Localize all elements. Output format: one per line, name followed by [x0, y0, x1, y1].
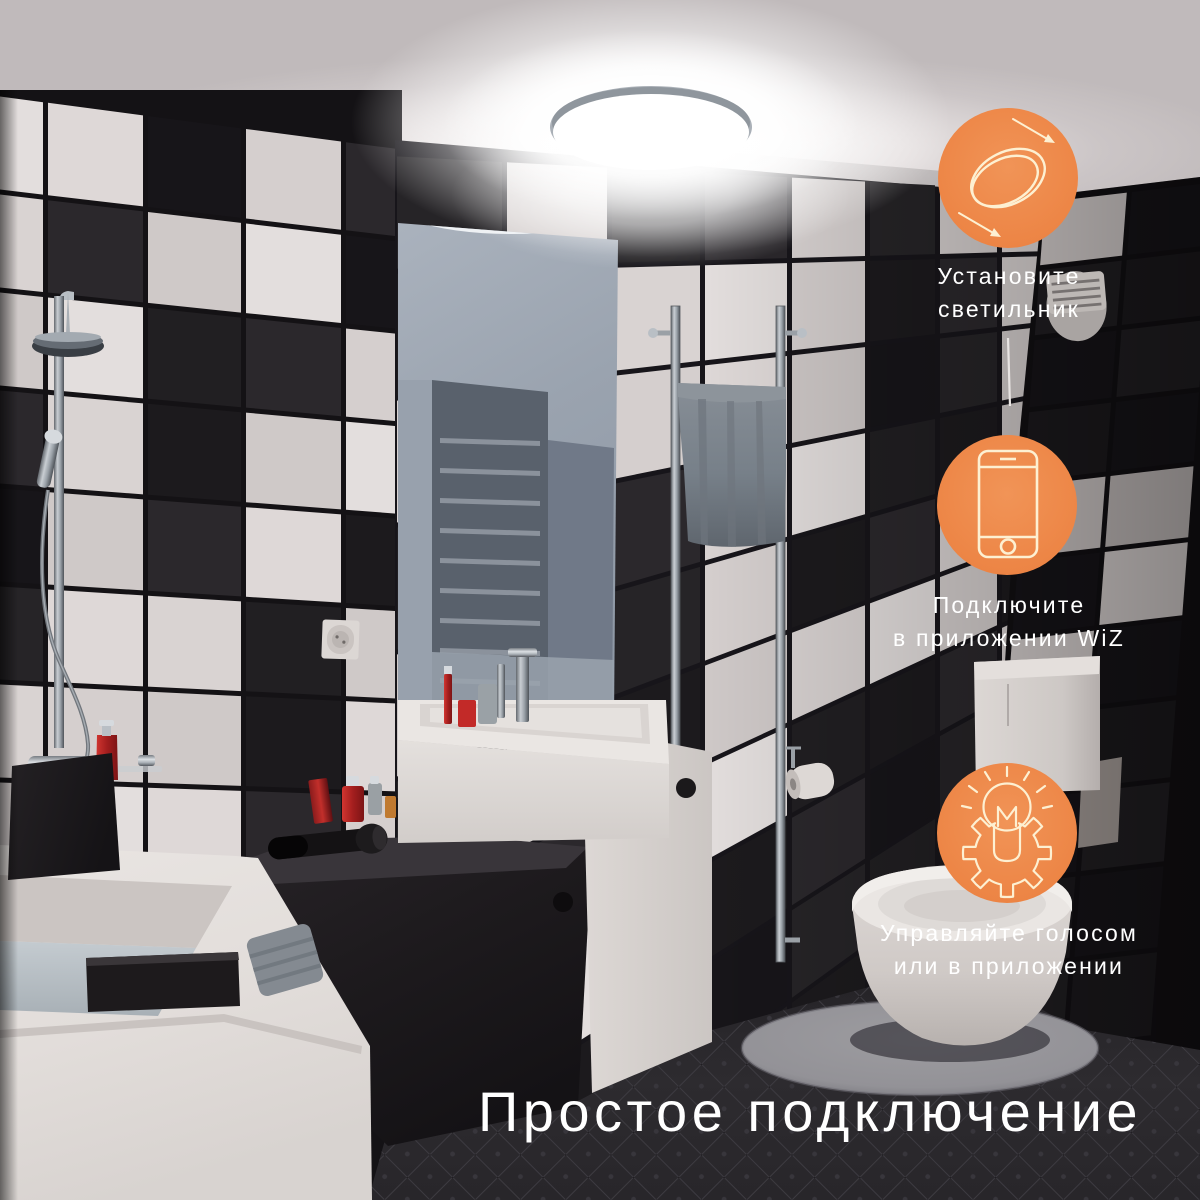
svg-text:Установите: Установите — [937, 263, 1080, 289]
svg-text:или в приложении: или в приложении — [894, 953, 1124, 979]
svg-text:в приложении WiZ: в приложении WiZ — [893, 625, 1125, 651]
svg-text:Простое подключение: Простое подключение — [478, 1080, 1142, 1143]
svg-text:Управляйте голосом: Управляйте голосом — [880, 920, 1138, 946]
svg-text:светильник: светильник — [938, 296, 1080, 322]
svg-text:Подключите: Подключите — [933, 592, 1086, 618]
